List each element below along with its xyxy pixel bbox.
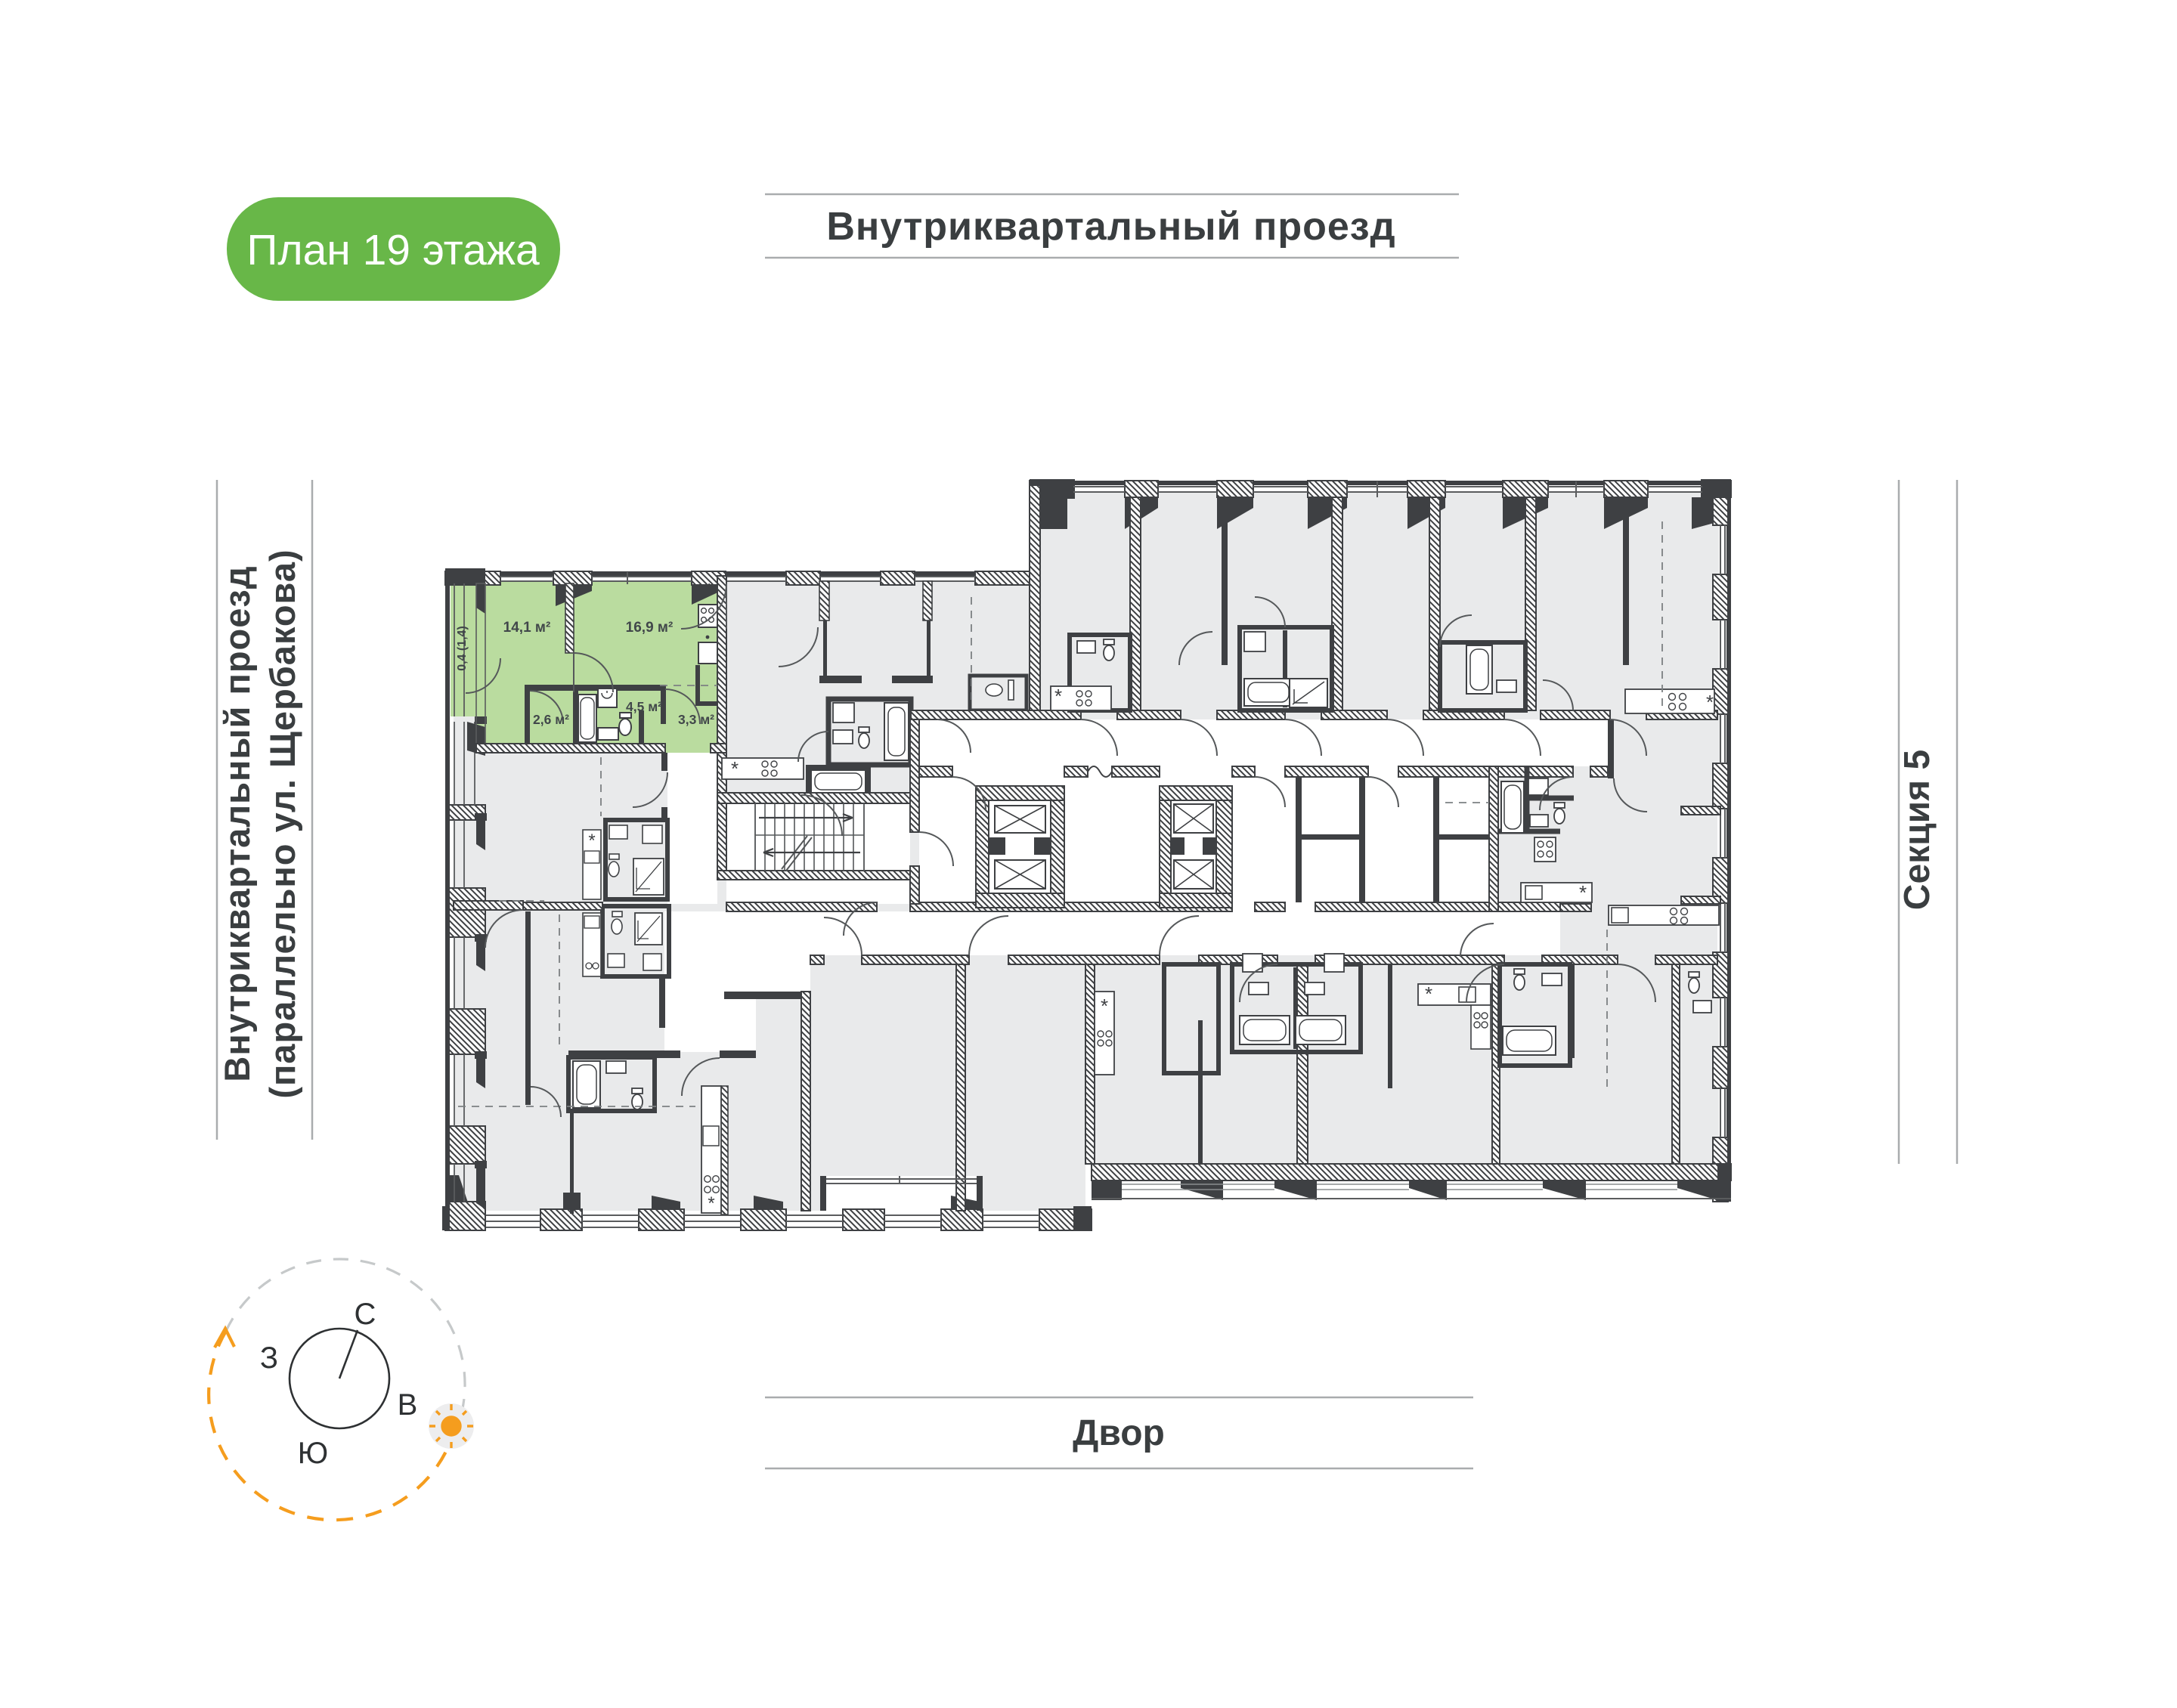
svg-text:Секция 5: Секция 5 [1897, 750, 1937, 910]
svg-text:3,3 м²: 3,3 м² [678, 712, 714, 727]
svg-text:*: * [1579, 881, 1587, 904]
svg-text:2,6 м²: 2,6 м² [533, 712, 569, 727]
svg-text:З: З [260, 1341, 278, 1375]
svg-text:*: * [708, 1193, 714, 1214]
svg-text:План 19 этажа: План 19 этажа [246, 226, 540, 274]
svg-text:Внутриквартальный проезд: Внутриквартальный проезд [217, 565, 257, 1081]
svg-text:(параллельно ул. Щербакова): (параллельно ул. Щербакова) [262, 549, 302, 1098]
svg-text:16,9 м²: 16,9 м² [626, 620, 674, 636]
svg-text:Внутриквартальный проезд: Внутриквартальный проезд [826, 205, 1395, 249]
svg-text:0,4 (1,4): 0,4 (1,4) [456, 626, 469, 671]
svg-text:*: * [1054, 685, 1062, 707]
svg-text:В: В [398, 1388, 418, 1422]
svg-text:4,5 м²: 4,5 м² [626, 699, 662, 714]
svg-text:Двор: Двор [1073, 1413, 1165, 1453]
svg-text:*: * [1101, 995, 1108, 1017]
svg-text:*: * [705, 579, 713, 602]
svg-text:*: * [1425, 982, 1432, 1005]
svg-text:Ю: Ю [298, 1437, 328, 1470]
svg-text:14,1 м²: 14,1 м² [503, 620, 551, 636]
svg-text:*: * [1706, 691, 1714, 713]
svg-text:*: * [588, 831, 595, 851]
svg-text:С: С [355, 1298, 376, 1331]
svg-text:*: * [731, 757, 739, 780]
